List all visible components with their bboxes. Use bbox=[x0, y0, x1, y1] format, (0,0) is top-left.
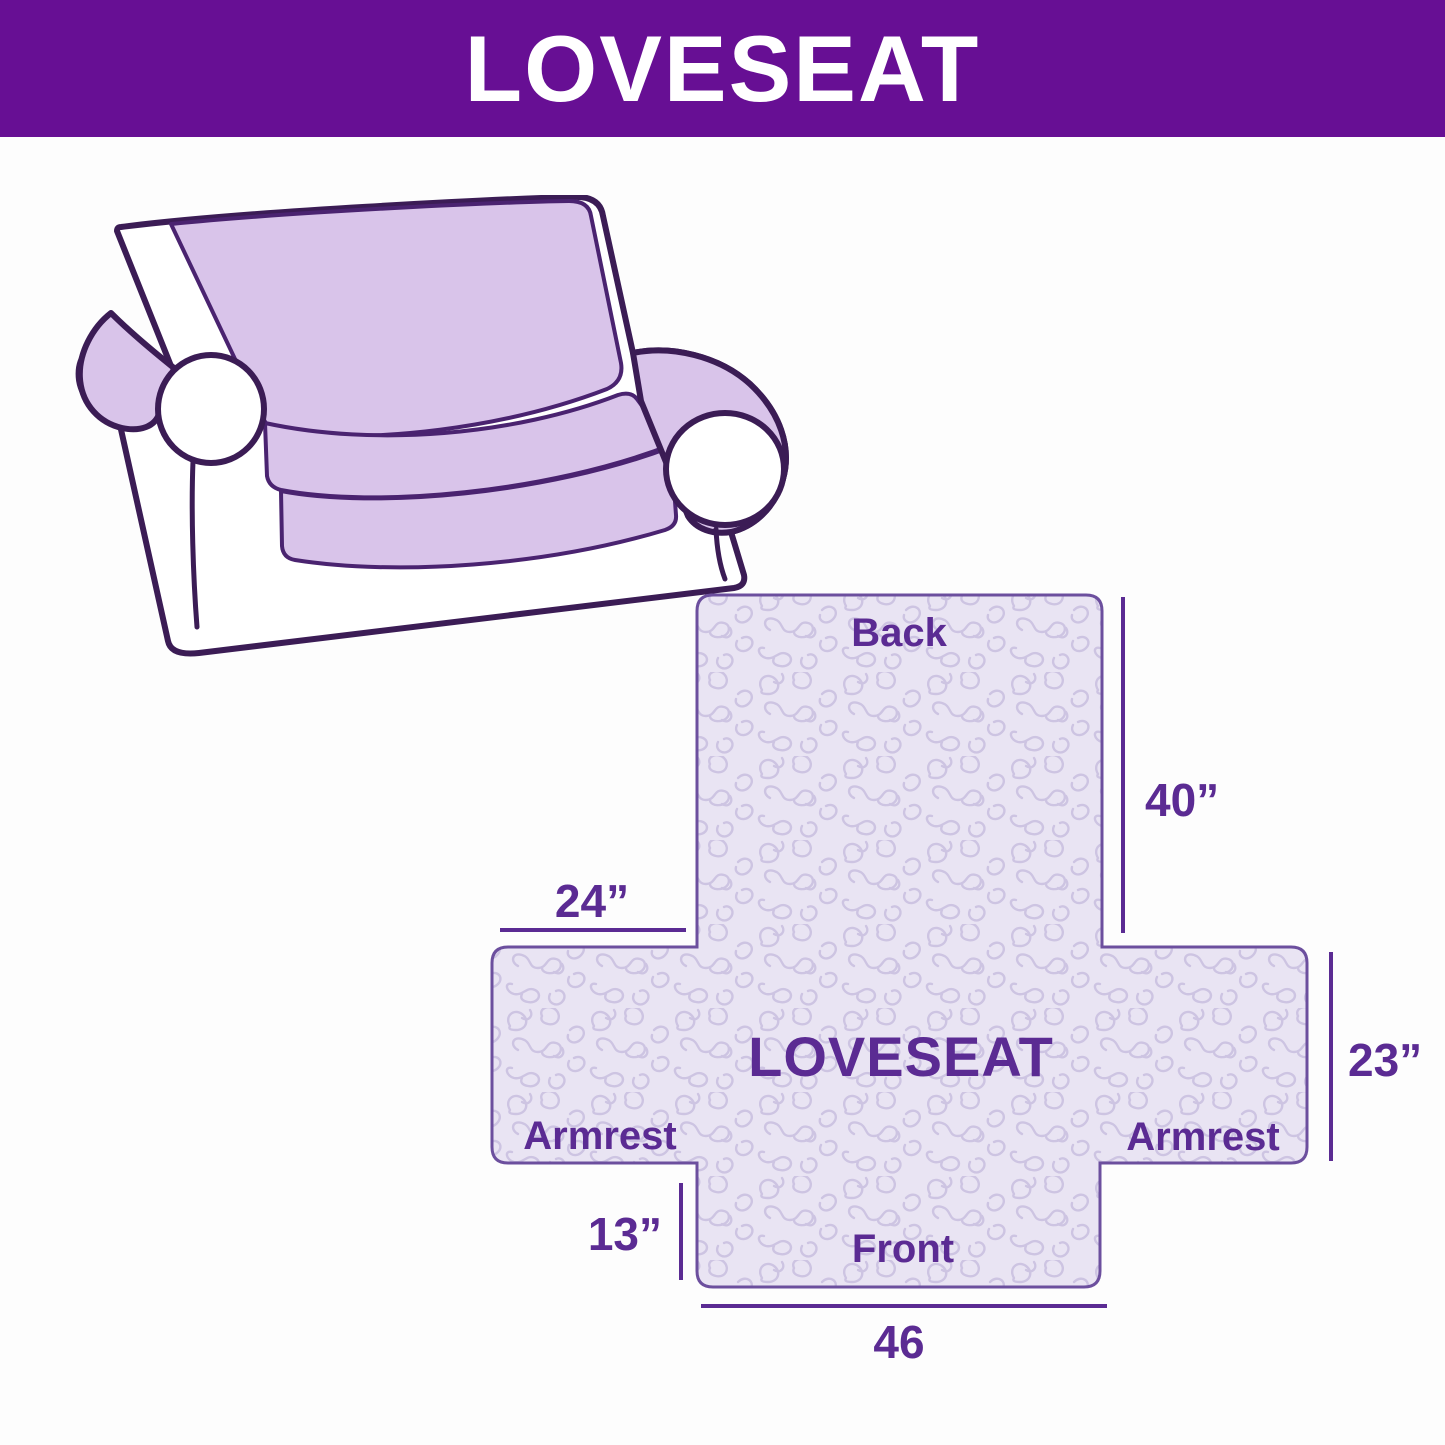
label-armrest-right: Armrest bbox=[1126, 1117, 1279, 1157]
cover-shape-quilting bbox=[492, 595, 1307, 1287]
label-front-panel: Front bbox=[852, 1229, 954, 1269]
page: LOVESEAT bbox=[0, 0, 1445, 1445]
label-center-loveseat: LOVESEAT bbox=[748, 1029, 1054, 1085]
label-dim-front-width: 46 bbox=[873, 1319, 924, 1365]
cover-cross-shape-svg bbox=[0, 0, 1445, 1445]
label-dim-armrest-width: 24” bbox=[555, 878, 629, 924]
label-dim-armrest-height: 23” bbox=[1348, 1037, 1422, 1083]
label-dim-back-height: 40” bbox=[1145, 777, 1219, 823]
label-armrest-left: Armrest bbox=[523, 1116, 676, 1156]
label-back-panel: Back bbox=[851, 613, 947, 653]
label-dim-front-skirt-height: 13” bbox=[588, 1211, 662, 1257]
